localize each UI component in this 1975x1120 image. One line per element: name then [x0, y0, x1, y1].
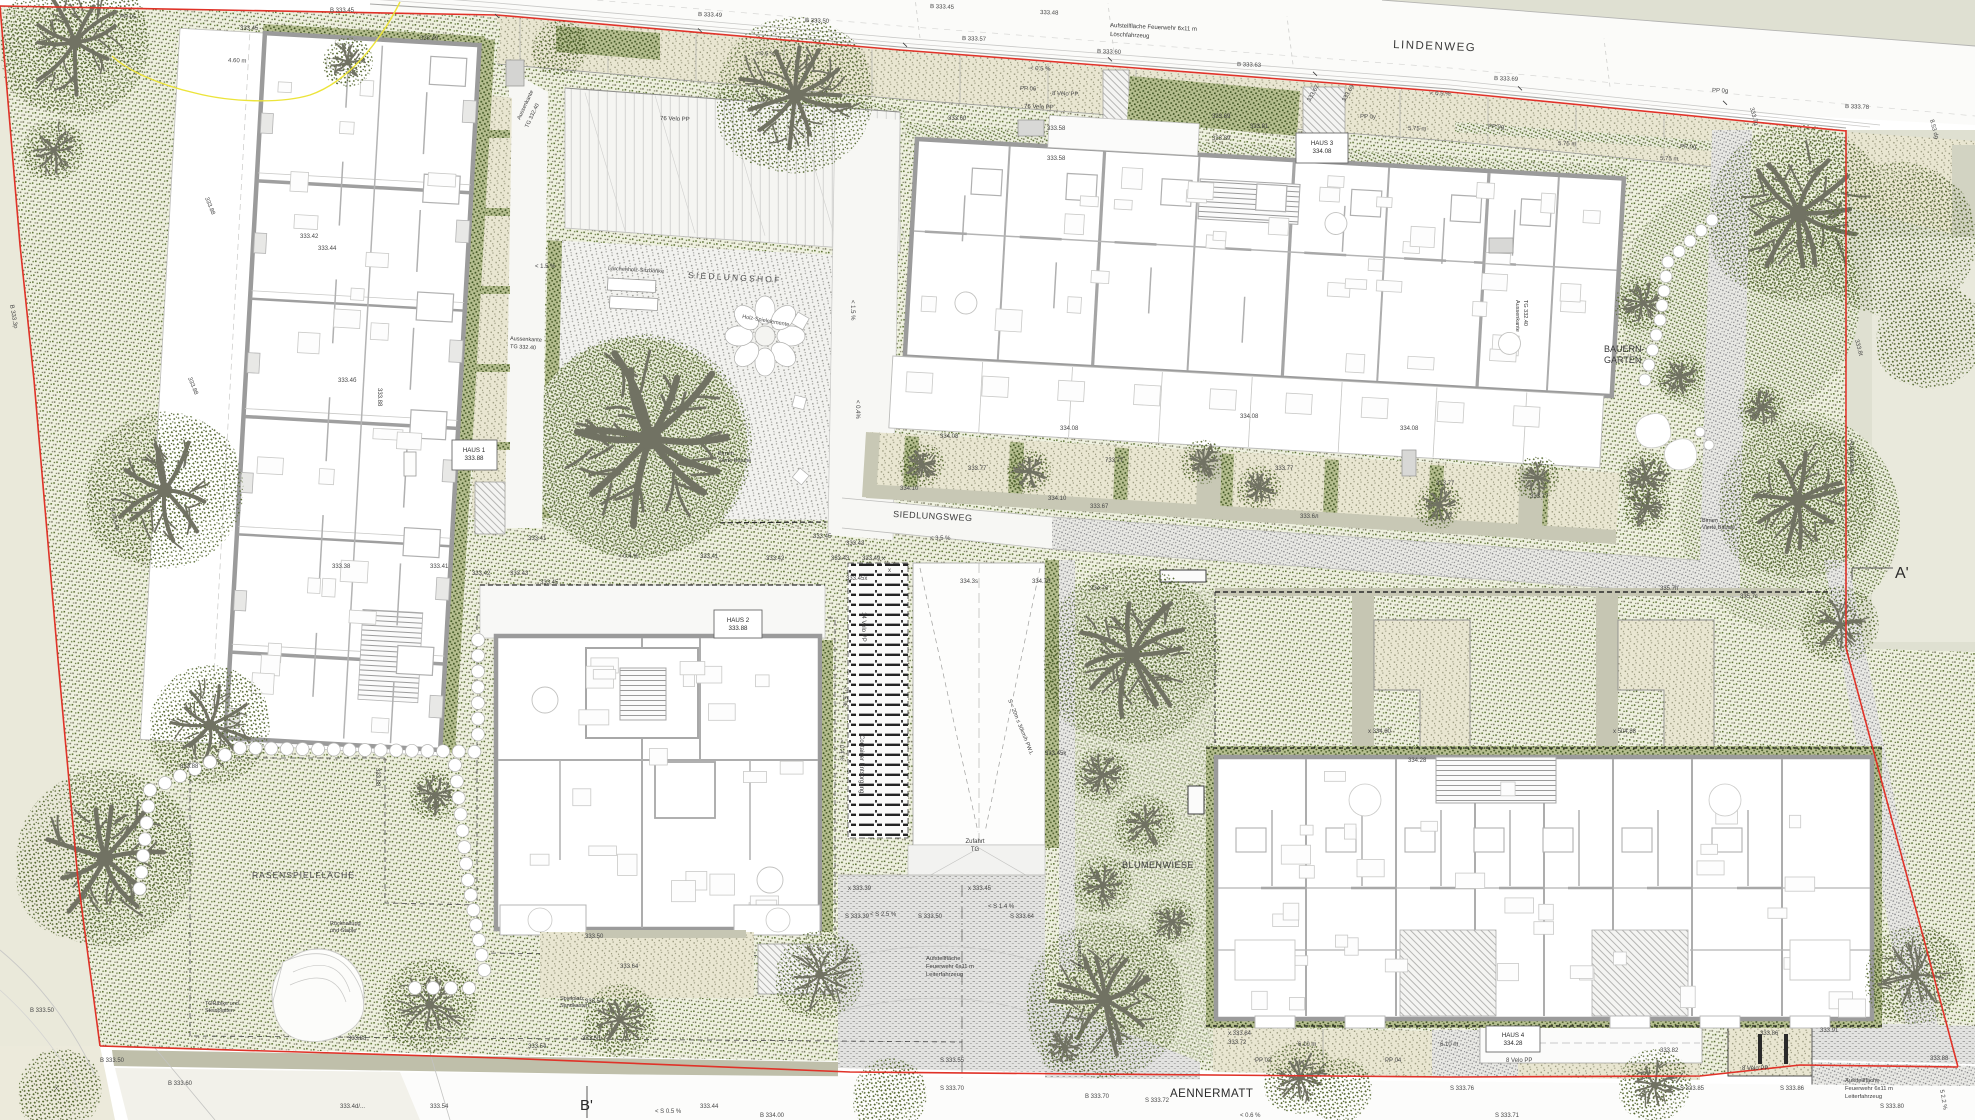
- svg-text:333.50: 333.50: [585, 934, 604, 940]
- svg-text:S 333.39: S 333.39: [845, 914, 870, 920]
- svg-text:5.75 m: 5.75 m: [1408, 126, 1427, 133]
- svg-text:333.88: 333.88: [1930, 1056, 1949, 1062]
- svg-text:334.28: 334.28: [1408, 758, 1427, 764]
- svg-text:S 333.76: S 333.76: [1450, 1086, 1475, 1092]
- svg-text:334.3s: 334.3s: [960, 579, 978, 585]
- svg-text:335.7h: 335.7h: [1660, 586, 1678, 592]
- svg-text:PP 0y: PP 0y: [1360, 114, 1376, 121]
- svg-text:HAUS 2: HAUS 2: [727, 617, 750, 624]
- svg-text:Aussenkante: Aussenkante: [1514, 300, 1520, 332]
- svg-text:PP 0g: PP 0g: [1488, 124, 1504, 131]
- svg-text:333.58: 333.58: [1047, 156, 1066, 162]
- svg-text:333.54: 333.54: [430, 1104, 449, 1110]
- svg-text:B 333.78: B 333.78: [1845, 104, 1870, 111]
- svg-text:333.88: 333.88: [180, 764, 199, 770]
- svg-text:< S 0.5 %: < S 0.5 %: [655, 1109, 682, 1115]
- svg-text:A': A': [1895, 565, 1909, 582]
- svg-text:333.41: 333.41: [700, 554, 719, 560]
- svg-text:Vierte Bäume: Vierte Bäume: [1702, 525, 1735, 531]
- svg-text:B 333.50: B 333.50: [100, 1058, 125, 1064]
- svg-text:S 333.70: S 333.70: [940, 1086, 965, 1092]
- svg-text:S 333.50: S 333.50: [918, 914, 943, 920]
- svg-text:PP 06: PP 06: [1020, 86, 1037, 93]
- svg-text:333.60: 333.60: [948, 116, 967, 122]
- svg-text:333.45x: 333.45x: [846, 576, 867, 582]
- svg-text:< S 2.5 %: < S 2.5 %: [870, 912, 897, 918]
- svg-text:Aussenkante: Aussenkante: [1848, 440, 1854, 475]
- svg-text:6.10 m: 6.10 m: [1440, 1042, 1458, 1048]
- svg-text:333.42: 333.42: [300, 234, 319, 240]
- svg-text:333.41: 333.41: [528, 536, 547, 542]
- svg-text:333.42: 333.42: [766, 556, 785, 562]
- svg-text:Sandkasten: Sandkasten: [560, 1003, 589, 1009]
- svg-text:333.64: 333.64: [620, 964, 639, 970]
- svg-text:B': B': [580, 1097, 593, 1114]
- svg-text:RASENSPIELFLÄCHE: RASENSPIELFLÄCHE: [252, 870, 355, 880]
- svg-text:Aufstellfläche: Aufstellfläche: [1845, 1078, 1879, 1084]
- svg-text:und Staple: und Staple: [330, 928, 356, 934]
- svg-text:< 0.4 %: < 0.4 %: [838, 740, 844, 761]
- svg-text:B 334.00: B 334.00: [760, 1113, 785, 1119]
- svg-text:333.4d/...: 333.4d/...: [340, 1104, 365, 1110]
- svg-text:333.58: 333.58: [1047, 126, 1066, 132]
- svg-text:334.28: 334.28: [1504, 1040, 1523, 1047]
- svg-text:Container Entsorgung: Container Entsorgung: [858, 735, 864, 793]
- svg-text:333.77: 333.77: [1275, 466, 1294, 472]
- svg-text:335.7s: 335.7s: [1740, 594, 1758, 600]
- svg-text:333.81: 333.81: [1250, 124, 1269, 130]
- svg-text:334.08: 334.08: [1400, 426, 1419, 432]
- svg-text:TG 332.40: TG 332.40: [1522, 300, 1528, 326]
- svg-text:333.38: 333.38: [332, 564, 351, 570]
- svg-text:334.7б: 334.7б: [1032, 579, 1051, 585]
- svg-text:333.44: 333.44: [700, 1104, 719, 1110]
- svg-text:333.49 x: 333.49 x: [862, 556, 885, 562]
- svg-text:Feuerwehr 6x11 m: Feuerwehr 6x11 m: [1845, 1086, 1893, 1092]
- svg-text:333.44: 333.44: [318, 246, 337, 252]
- svg-text:S 333.86: S 333.86: [1780, 1086, 1805, 1092]
- svg-text:x 333.39: x 333.39: [848, 886, 872, 892]
- svg-text:333.77: 333.77: [1436, 481, 1455, 487]
- svg-text:B 333.70: B 333.70: [1085, 1094, 1110, 1100]
- svg-text:x 333.84: x 333.84: [1228, 1031, 1252, 1037]
- svg-text:333.69: 333.69: [1212, 114, 1231, 120]
- svg-text:Aufstellfläche: Aufstellfläche: [926, 956, 960, 962]
- svg-text:333.45: 333.45: [813, 534, 832, 540]
- svg-text:334.08: 334.08: [1240, 414, 1259, 420]
- svg-text:Hauptzufahrt: Hauptzufahrt: [1076, 940, 1082, 972]
- svg-text:334.08: 334.08: [940, 434, 959, 440]
- svg-text:333.86: 333.86: [1760, 1031, 1779, 1037]
- svg-text:< S 1.4 %: < S 1.4 %: [988, 904, 1015, 910]
- svg-text:334.08: 334.08: [1060, 426, 1079, 432]
- svg-text:333.49: 333.49: [420, 36, 439, 42]
- svg-text:334.10: 334.10: [900, 486, 919, 492]
- svg-text:B 333.60: B 333.60: [1097, 49, 1122, 56]
- svg-text:333.88: 333.88: [465, 455, 484, 462]
- svg-text:Vierte Bäume: Vierte Bäume: [718, 458, 751, 464]
- svg-text:x: x: [55, 1086, 58, 1092]
- svg-text:333.72: 333.72: [1228, 1040, 1247, 1046]
- svg-text:PP 03: PP 03: [1255, 1058, 1272, 1064]
- svg-text:8 Velo PP: 8 Velo PP: [1052, 91, 1079, 98]
- svg-text:< 0.4 %: < 0.4 %: [618, 554, 639, 560]
- svg-text:333.43: 333.43: [831, 556, 850, 562]
- svg-text:Leiterfahrzeug: Leiterfahrzeug: [1845, 1094, 1882, 1100]
- svg-text:333.41: 333.41: [430, 564, 449, 570]
- svg-text:AENNERMATT: AENNERMATT: [1170, 1088, 1253, 1100]
- svg-text:B 333.50: B 333.50: [30, 1008, 55, 1014]
- svg-text:S 333.85: S 333.85: [1680, 1086, 1705, 1092]
- svg-text:B 333.63: B 333.63: [1237, 62, 1262, 69]
- svg-text:Rückhaltung: Rückhaltung: [330, 921, 361, 927]
- svg-text:333.45k: 333.45k: [1045, 751, 1067, 757]
- svg-text:333.67: 333.67: [1090, 504, 1109, 510]
- svg-text:334.08: 334.08: [1313, 148, 1332, 155]
- svg-text:Birnen: Birnen: [718, 451, 734, 457]
- svg-text:76 Velo PP: 76 Velo PP: [660, 116, 690, 123]
- svg-text:S 333.71: S 333.71: [1495, 1113, 1520, 1119]
- svg-text:PP 05: PP 05: [120, 14, 137, 21]
- svg-text:Birnen: Birnen: [1702, 518, 1718, 524]
- svg-text:Spielplatz: Spielplatz: [560, 996, 584, 1002]
- svg-text:333.77: 333.77: [1530, 494, 1549, 500]
- svg-text:733.77: 733.77: [1105, 458, 1124, 464]
- svg-text:< 3.5 %: < 3.5 %: [930, 536, 951, 542]
- svg-text:333.88: 333.88: [374, 768, 380, 787]
- svg-text:6.10 m: 6.10 m: [1298, 1042, 1316, 1048]
- svg-text:333.82: 333.82: [1660, 1048, 1679, 1054]
- svg-text:5.75 m: 5.75 m: [1558, 141, 1577, 148]
- svg-text:PP 0g: PP 0g: [1680, 144, 1696, 151]
- svg-text:333.42: 333.42: [472, 571, 491, 577]
- svg-text:334.10: 334.10: [1048, 496, 1067, 502]
- svg-text:< 0.5 %: < 0.5 %: [755, 51, 776, 58]
- svg-text:x: x: [888, 568, 891, 574]
- svg-text:< 0.5 %: < 0.5 %: [1430, 91, 1451, 98]
- svg-text:Steinplatten: Steinplatten: [205, 1008, 234, 1014]
- svg-text:TOR/bike und: TOR/bike und: [205, 1001, 239, 1007]
- svg-text:PP 0g: PP 0g: [1712, 88, 1728, 95]
- svg-text:HAUS 3: HAUS 3: [1311, 140, 1334, 147]
- svg-text:< 0.5 %: < 0.5 %: [1030, 66, 1051, 73]
- svg-text:Zufahrt: Zufahrt: [965, 839, 984, 845]
- svg-text:76 Velo PP: 76 Velo PP: [1024, 104, 1054, 111]
- svg-text:333.54: 333.54: [528, 1044, 547, 1050]
- svg-text:HAUS 1: HAUS 1: [463, 447, 486, 454]
- svg-text:333.50: 333.50: [582, 1036, 601, 1042]
- svg-text:x 504.88: x 504.88: [1613, 729, 1637, 735]
- svg-text:333.4б: 333.4б: [338, 378, 357, 384]
- svg-text:Feuerwehr 6x11 m: Feuerwehr 6x11 m: [926, 964, 974, 970]
- svg-text:333.88: 333.88: [348, 1036, 367, 1042]
- svg-text:HAUS 4: HAUS 4: [1502, 1032, 1525, 1039]
- svg-text:GARTEN: GARTEN: [1604, 355, 1641, 365]
- svg-text:< 1.5 %: < 1.5 %: [849, 300, 855, 321]
- svg-text:Leiterfahrzeug: Leiterfahrzeug: [926, 972, 963, 978]
- svg-text:333.45: 333.45: [240, 26, 259, 32]
- svg-text:8 Velo PP: 8 Velo PP: [1506, 1058, 1532, 1064]
- svg-text:TG: TG: [971, 847, 980, 853]
- svg-text:S 333.55: S 333.55: [940, 1058, 965, 1064]
- svg-text:x 333.45: x 333.45: [968, 886, 992, 892]
- svg-text:B 333.50: B 333.50: [805, 18, 830, 25]
- svg-text:B 333.49: B 333.49: [698, 12, 723, 19]
- svg-text:14 Velo PP: 14 Velo PP: [860, 612, 866, 642]
- svg-text:PP 04: PP 04: [1385, 1058, 1402, 1064]
- svg-text:B 333.45: B 333.45: [930, 4, 955, 11]
- svg-text:333.6л: 333.6л: [1300, 514, 1319, 520]
- svg-text:< 1.5 %: < 1.5 %: [841, 686, 847, 707]
- svg-text:5.75 m: 5.75 m: [1660, 156, 1679, 163]
- svg-text:333.77: 333.77: [968, 466, 987, 472]
- svg-text:333.88: 333.88: [376, 388, 382, 407]
- svg-text:333.88: 333.88: [729, 625, 748, 632]
- svg-text:x 334.80: x 334.80: [1368, 729, 1392, 735]
- svg-text:333.43: 333.43: [846, 541, 865, 547]
- svg-text:< 0.4%: < 0.4%: [854, 400, 860, 420]
- svg-text:333.91: 333.91: [1820, 1028, 1839, 1034]
- svg-text:BLUMENWIESE: BLUMENWIESE: [1122, 860, 1194, 870]
- svg-text:B 333.57: B 333.57: [962, 36, 987, 43]
- svg-text:BAUERN-: BAUERN-: [1604, 344, 1645, 354]
- svg-text:4.60 m: 4.60 m: [228, 58, 247, 65]
- svg-text:333.48: 333.48: [1040, 10, 1059, 17]
- svg-text:S 333.80: S 333.80: [1880, 1104, 1905, 1110]
- svg-text:8 Velo PP: 8 Velo PP: [1742, 1066, 1768, 1072]
- svg-text:S 333.72: S 333.72: [1145, 1098, 1170, 1104]
- svg-text:B 333.60: B 333.60: [168, 1081, 193, 1087]
- svg-text:333.43: 333.43: [510, 571, 529, 577]
- svg-text:S 333.64: S 333.64: [1010, 914, 1035, 920]
- svg-text:< 0.6 %: < 0.6 %: [1240, 1113, 1261, 1119]
- svg-text:< 1.5 %: < 1.5 %: [535, 264, 556, 270]
- svg-text:B 333.69: B 333.69: [1494, 76, 1519, 83]
- svg-text:334.70: 334.70: [1090, 586, 1109, 592]
- svg-text:333.45: 333.45: [540, 580, 559, 586]
- svg-text:B 333.45: B 333.45: [330, 8, 355, 14]
- svg-text:333.89: 333.89: [1212, 136, 1231, 142]
- svg-text:x 334.28: x 334.28: [1258, 748, 1282, 754]
